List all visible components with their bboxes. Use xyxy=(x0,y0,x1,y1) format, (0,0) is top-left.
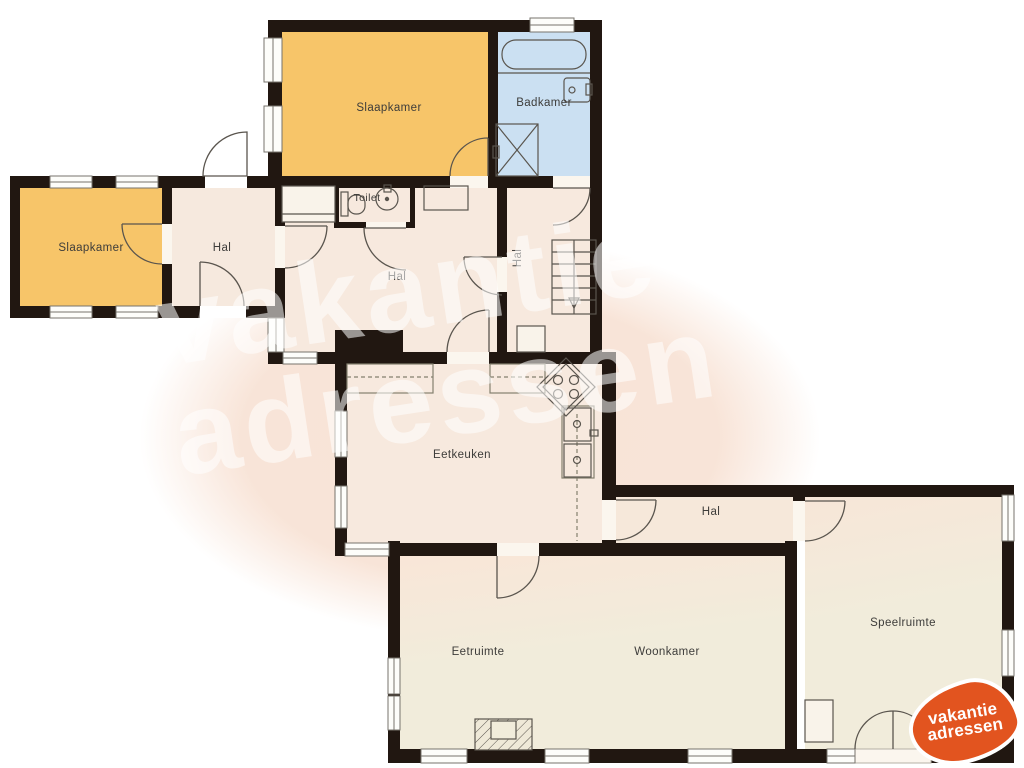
fireplace-icon xyxy=(475,719,532,750)
closet-hal-center xyxy=(282,186,335,222)
closet-hal-right xyxy=(517,326,545,352)
window xyxy=(335,486,347,528)
window xyxy=(50,306,92,318)
window xyxy=(388,658,400,694)
room-floors xyxy=(20,32,1002,749)
vakantieadressen-logo: vakantie adressen xyxy=(908,681,1020,763)
floorplan-page: Slaapkamer Badkamer Toilet Slaapkamer Ha… xyxy=(0,0,1024,768)
room-floor-hal-bottom xyxy=(614,497,793,543)
window xyxy=(116,176,158,188)
window xyxy=(335,411,347,457)
room-label-slaapkamer-top: Slaapkamer xyxy=(356,102,421,114)
window xyxy=(345,543,389,556)
room-label-speelruimte: Speelruimte xyxy=(870,617,936,629)
window xyxy=(530,18,574,32)
room-label-hal-left: Hal xyxy=(213,242,231,254)
room-label-toilet: Toilet xyxy=(354,192,381,204)
window xyxy=(1002,495,1014,541)
window xyxy=(688,749,732,763)
window xyxy=(545,749,589,763)
floorplan-drawing: Slaapkamer Badkamer Toilet Slaapkamer Ha… xyxy=(0,0,1024,768)
window xyxy=(827,749,855,763)
window xyxy=(1002,630,1014,676)
window xyxy=(388,696,400,730)
window xyxy=(421,749,467,763)
room-label-eetruimte: Eetruimte xyxy=(452,646,505,658)
room-label-hal-center: Hal xyxy=(388,271,406,283)
closet-speelruimte xyxy=(805,700,833,742)
window xyxy=(268,318,284,352)
room-label-eetkeuken: Eetkeuken xyxy=(433,449,491,461)
window xyxy=(264,38,282,82)
window xyxy=(283,352,317,364)
room-label-woonkamer: Woonkamer xyxy=(634,646,699,658)
room-label-hal-right: Hal xyxy=(512,249,524,267)
room-label-slaapkamer-left: Slaapkamer xyxy=(58,242,123,254)
window xyxy=(116,306,158,318)
logo-text: vakantie adressen xyxy=(902,673,1024,768)
window xyxy=(50,176,92,188)
room-label-badkamer: Badkamer xyxy=(516,97,572,109)
room-label-hal-bottom: Hal xyxy=(702,506,720,518)
front-door xyxy=(203,132,247,176)
window xyxy=(264,106,282,152)
